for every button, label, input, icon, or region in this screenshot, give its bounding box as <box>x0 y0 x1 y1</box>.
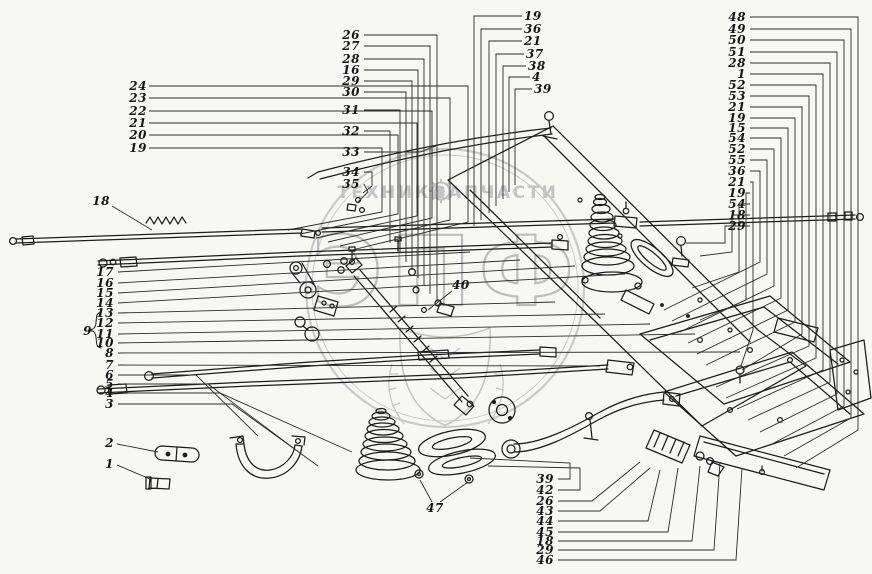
part-number-label: 2 <box>105 436 114 450</box>
part-number-label: 46 <box>536 553 554 567</box>
part-number-label: 18 <box>92 194 110 208</box>
part-number-label: 29 <box>728 219 746 233</box>
part-number-label: 39 <box>534 82 552 96</box>
part-number-label: 9 <box>83 324 92 338</box>
part-number-label: 32 <box>342 124 360 138</box>
part-number-label: 31 <box>342 103 360 117</box>
part-number-label: 20 <box>129 128 147 142</box>
part-number-label: 33 <box>342 145 360 159</box>
part-number-label: 40 <box>452 278 470 292</box>
callout-labels-layer: 2423222120191817161514131211109876543212… <box>0 0 872 574</box>
part-number-label: 19 <box>524 9 542 23</box>
part-number-label: 23 <box>129 91 147 105</box>
part-number-label: 27 <box>342 39 360 53</box>
part-number-label: 47 <box>426 501 444 515</box>
part-number-label: 30 <box>342 85 360 99</box>
part-number-label: 35 <box>342 177 360 191</box>
part-number-label: 3 <box>105 397 114 411</box>
part-number-label: 19 <box>129 141 147 155</box>
part-number-label: 1 <box>105 457 114 471</box>
part-number-label: 21 <box>524 34 542 48</box>
parts-diagram-page: ТЕХНИКА ЗАПЧАСТИ ЭПФ <box>0 0 872 574</box>
